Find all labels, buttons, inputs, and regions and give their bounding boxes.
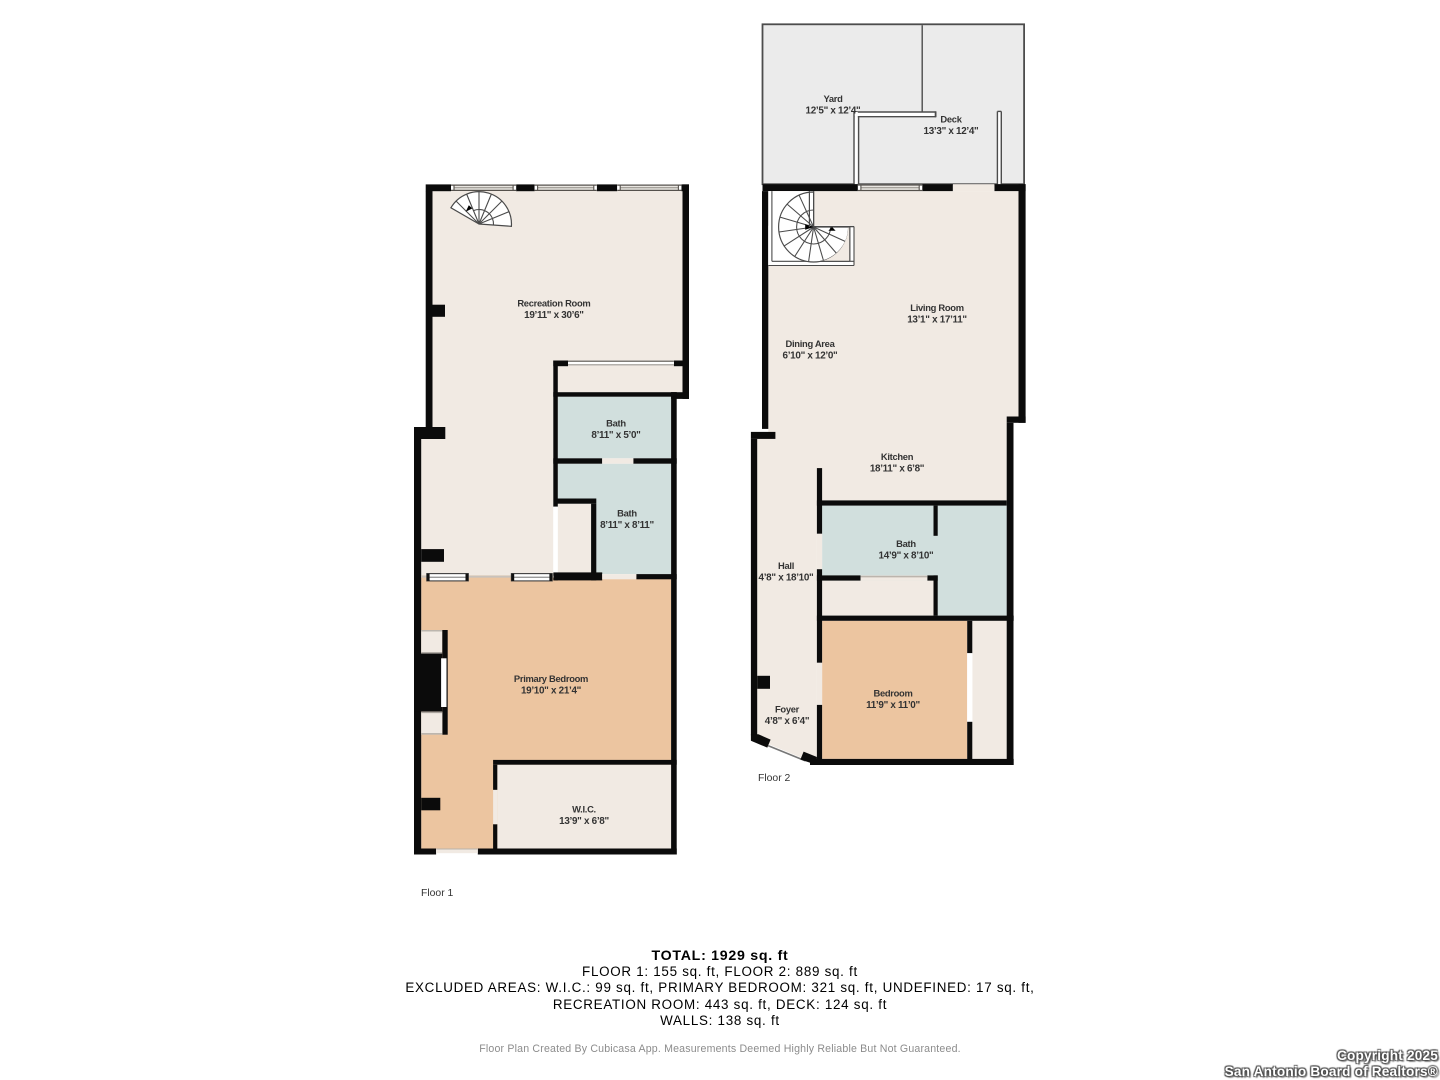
svg-text:8’11" x 8’11": 8’11" x 8’11": [600, 520, 654, 531]
svg-text:Yard: Yard: [823, 93, 843, 104]
svg-text:Dining Area: Dining Area: [786, 338, 836, 349]
svg-text:Bath: Bath: [606, 418, 626, 429]
svg-text:Bath: Bath: [617, 508, 637, 519]
svg-text:13’9" x 6’8": 13’9" x 6’8": [559, 816, 609, 827]
svg-text:Floor 2: Floor 2: [758, 773, 791, 784]
svg-text:13’3" x 12’4": 13’3" x 12’4": [924, 126, 980, 137]
svg-text:18’11" x 6’8": 18’11" x 6’8": [870, 463, 925, 474]
svg-text:Recreation Room: Recreation Room: [517, 298, 590, 309]
svg-text:Deck: Deck: [940, 113, 962, 124]
svg-text:8’11" x 5’0": 8’11" x 5’0": [591, 430, 641, 441]
svg-text:Foyer: Foyer: [775, 703, 800, 714]
svg-text:Hall: Hall: [778, 560, 794, 571]
svg-text:Bath: Bath: [896, 538, 916, 549]
svg-text:Primary Bedroom: Primary Bedroom: [514, 673, 588, 684]
svg-text:19’10" x 21’4": 19’10" x 21’4": [521, 685, 582, 696]
svg-text:Kitchen: Kitchen: [881, 451, 914, 462]
svg-text:11’9" x 11’0": 11’9" x 11’0": [866, 700, 920, 711]
svg-text:Floor 1: Floor 1: [421, 888, 454, 899]
svg-text:14’9" x 8’10": 14’9" x 8’10": [879, 550, 935, 561]
svg-text:Bedroom: Bedroom: [873, 687, 912, 698]
svg-text:4’8" x 6’4": 4’8" x 6’4": [765, 716, 810, 727]
svg-text:19’11" x 30’6": 19’11" x 30’6": [524, 310, 584, 321]
svg-text:Living Room: Living Room: [910, 302, 963, 313]
svg-text:W.I.C.: W.I.C.: [572, 803, 596, 814]
svg-text:6’10" x 12’0": 6’10" x 12’0": [783, 350, 839, 361]
svg-text:4’8" x 18’10": 4’8" x 18’10": [759, 572, 815, 583]
svg-text:12’5" x 12’4": 12’5" x 12’4": [806, 105, 862, 116]
svg-text:13’1" x 17’11": 13’1" x 17’11": [907, 314, 967, 325]
